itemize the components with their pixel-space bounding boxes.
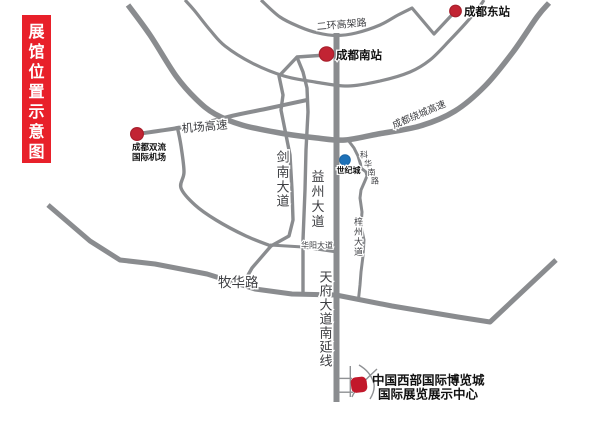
svg-text:世纪城: 世纪城 [337,165,361,175]
svg-text:南: 南 [319,326,332,341]
svg-text:成都双流: 成都双流 [132,142,167,152]
svg-text:南: 南 [368,167,376,177]
svg-text:大: 大 [354,236,363,247]
svg-text:中国西部国际博览城: 中国西部国际博览城 [372,373,485,388]
svg-text:道: 道 [319,312,332,327]
svg-text:道: 道 [276,194,289,209]
svg-text:剑: 剑 [276,150,289,165]
svg-text:州: 州 [311,184,324,199]
svg-text:延: 延 [319,340,332,355]
svg-text:科: 科 [360,150,368,160]
svg-text:南: 南 [276,165,289,180]
svg-text:机场高速: 机场高速 [181,117,229,135]
svg-text:大: 大 [311,199,324,214]
svg-text:路: 路 [371,176,379,186]
svg-text:成都南站: 成都南站 [336,48,382,62]
svg-text:牧华路: 牧华路 [218,275,259,290]
svg-text:府: 府 [319,284,332,299]
svg-text:线: 线 [319,354,332,369]
svg-text:华阳大道: 华阳大道 [301,240,333,250]
svg-text:天: 天 [319,270,332,285]
svg-text:梓: 梓 [354,216,363,227]
svg-text:国际展览展示中心: 国际展览展示中心 [378,387,479,402]
svg-text:道: 道 [311,214,324,229]
svg-text:州: 州 [354,227,363,237]
svg-text:成都东站: 成都东站 [464,5,510,19]
svg-text:大: 大 [276,180,289,195]
svg-text:国际机场: 国际机场 [132,152,167,162]
svg-text:大: 大 [319,298,332,313]
svg-text:华: 华 [364,159,372,169]
svg-text:益: 益 [311,169,324,184]
svg-text:道: 道 [354,246,363,257]
svg-text:二环高架路: 二环高架路 [316,16,367,33]
